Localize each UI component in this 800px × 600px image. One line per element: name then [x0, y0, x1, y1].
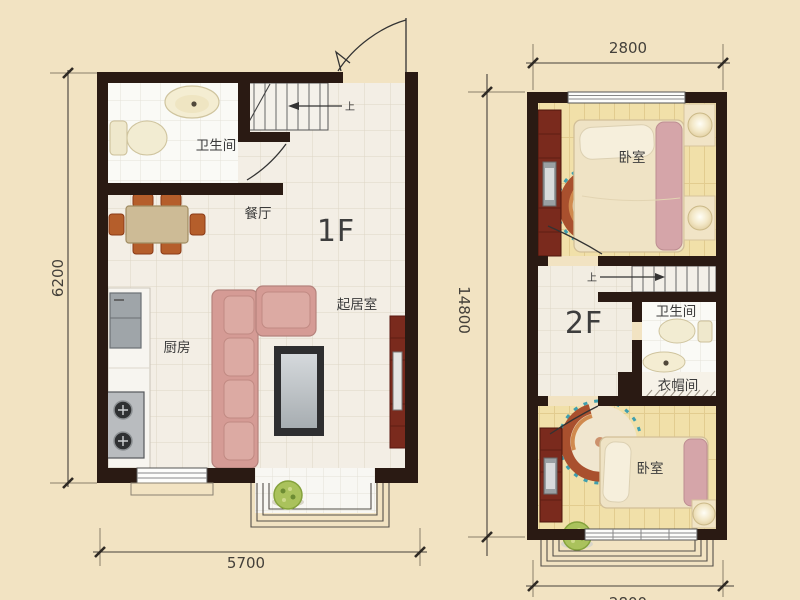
room-label-dining: 餐厅: [245, 206, 272, 222]
dimension-6200: 6200: [49, 68, 97, 488]
window-2f-bottom: [585, 529, 697, 540]
entry-door-swing: [336, 18, 406, 72]
toilet-icon-2f: [659, 319, 712, 343]
window-1f-bottom: [131, 468, 213, 495]
room-label-living: 起居室: [337, 296, 378, 313]
floor-plan-canvas: 上 卫生间 餐厅 1F 起居室: [0, 0, 800, 600]
coffee-table: [274, 346, 324, 436]
toilet-icon-1f: [110, 121, 167, 155]
room-label-bathroom-1f: 卫生间: [196, 138, 237, 154]
sink-icon-1f: [165, 86, 219, 118]
floor-label-2f: 2F: [565, 306, 603, 341]
bed-upper: [574, 120, 684, 252]
wardrobe-upper: [538, 110, 561, 256]
dimension-14800: 14800: [455, 74, 525, 556]
nightstand-upper-2: [684, 196, 715, 240]
dimension-2800-top: 2800: [526, 39, 730, 90]
porch-steps: [251, 468, 389, 527]
room-label-bathroom-2f: 卫生间: [656, 304, 697, 320]
nightstand-upper-1: [684, 104, 715, 146]
stove-icon: [106, 392, 144, 458]
dim-label-14800: 14800: [455, 286, 473, 334]
stairs-up-label-2f: 上: [587, 272, 597, 284]
dimension-5700: 5700: [93, 528, 427, 572]
floor-label-1f: 1F: [317, 214, 355, 249]
sink-icon-2f: [643, 352, 685, 372]
room-label-bedroom-lower: 卧室: [637, 460, 664, 477]
stairs-up-label-1f: 上: [345, 101, 355, 113]
room-label-closet: 衣帽间: [658, 378, 699, 394]
plan-1f: 上 卫生间 餐厅 1F 起居室: [97, 18, 418, 527]
wardrobe-lower: [540, 428, 562, 522]
plan-2f: 上: [527, 92, 727, 566]
dim-label-5700: 5700: [227, 554, 265, 572]
floor-plan-image: 上 卫生间 餐厅 1F 起居室: [0, 0, 800, 600]
dim-label-2800-bottom: 2800: [609, 594, 647, 600]
room-label-bedroom-upper: 卧室: [619, 149, 646, 166]
room-label-kitchen: 厨房: [164, 340, 191, 356]
dim-label-6200: 6200: [49, 259, 67, 297]
tv-cabinet: [390, 316, 406, 448]
dim-label-2800-top: 2800: [609, 39, 647, 57]
nightstand-lower: [692, 500, 716, 528]
fridge-icon: [110, 293, 141, 348]
window-2f-top: [568, 92, 685, 103]
